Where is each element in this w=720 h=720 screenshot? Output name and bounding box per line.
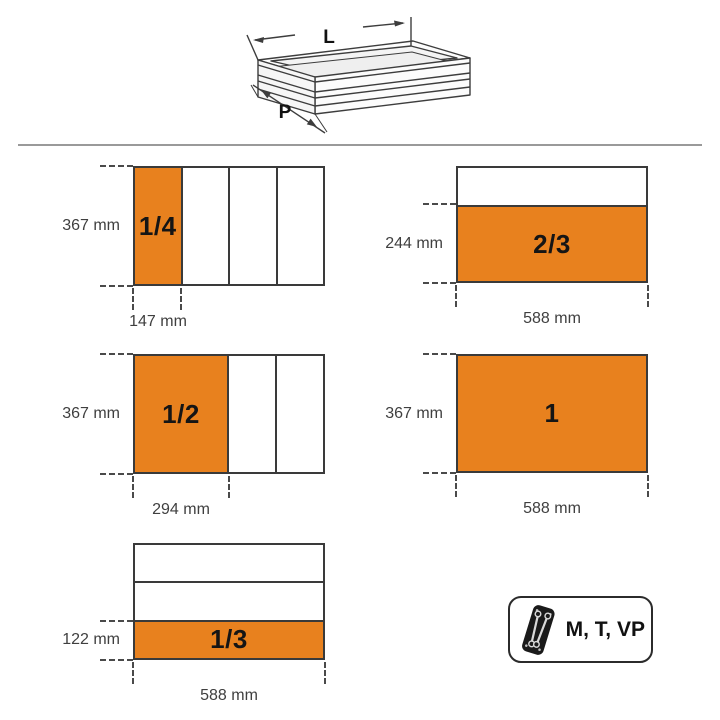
height-dimension-label: 244 mm [385, 235, 443, 253]
extension-line [423, 472, 456, 474]
wrench-tray-icon [518, 602, 559, 658]
height-dimension-label: 367 mm [385, 405, 443, 423]
extension-line [180, 288, 182, 310]
drawer-grid: 1/4 [133, 166, 325, 286]
drawer-size-option-half: 367 mm 1/2 294 mm [133, 354, 325, 474]
drawer-grid: 1/2 [133, 354, 325, 474]
selected-module: 2/3 [458, 205, 646, 281]
extension-line [455, 475, 457, 497]
extension-line [324, 662, 326, 684]
section-divider [18, 144, 702, 146]
extension-line [132, 288, 134, 310]
depth-dimension-label: P [279, 102, 292, 123]
tool-module-badge: M, T, VP [508, 596, 653, 663]
extension-line [423, 203, 456, 205]
height-dimension-label: 367 mm [62, 405, 120, 423]
extension-line [647, 285, 649, 307]
module-slot [275, 356, 323, 472]
selected-module: 1/2 [135, 356, 227, 472]
width-dimension-label: 588 mm [200, 687, 258, 705]
module-slot [228, 168, 276, 284]
drawer-size-option-two-thirds: 244 mm 2/3 588 mm [456, 166, 648, 283]
extension-line [132, 662, 134, 684]
fraction-label: 1/3 [135, 622, 323, 658]
extension-line [423, 282, 456, 284]
width-dimension-label: 588 mm [523, 500, 581, 518]
selected-module: 1/3 [135, 620, 323, 658]
extension-line [647, 475, 649, 497]
width-dimension-label: 294 mm [152, 501, 210, 519]
badge-label: M, T, VP [566, 618, 645, 642]
fraction-label: 1/2 [135, 356, 227, 472]
extension-line [423, 353, 456, 355]
fraction-label: 1 [458, 356, 646, 471]
module-slot [135, 545, 323, 581]
selected-module: 1 [458, 356, 646, 471]
extension-line [100, 285, 133, 287]
extension-line [228, 476, 230, 498]
drawer-grid: 1/3 [133, 543, 325, 660]
module-slot [458, 168, 646, 205]
fraction-label: 2/3 [458, 207, 646, 281]
drawer-grid: 2/3 [456, 166, 648, 283]
module-slot [276, 168, 324, 284]
height-dimension-label: 122 mm [62, 631, 120, 649]
drawer-size-option-full: 367 mm 1 588 mm [456, 354, 648, 473]
extension-line [100, 353, 133, 355]
selected-module: 1/4 [135, 168, 181, 284]
extension-line [100, 165, 133, 167]
extension-line [132, 476, 134, 498]
width-dimension-label: 147 mm [129, 313, 187, 331]
extension-line [100, 620, 133, 622]
module-slot [181, 168, 229, 284]
drawer-size-option-third: 122 mm 1/3 588 mm [133, 543, 325, 660]
height-dimension-label: 367 mm [62, 217, 120, 235]
extension-line [100, 659, 133, 661]
module-slot [227, 356, 275, 472]
drawer-isometric-illustration: L P [245, 12, 485, 140]
fraction-label: 1/4 [135, 168, 181, 284]
drawer-size-diagram-page: L P 367 mm 1/4 147 mm 244 mm 2/3 [0, 0, 720, 720]
length-dimension-label: L [323, 27, 335, 48]
extension-line [100, 473, 133, 475]
module-slot [135, 581, 323, 619]
extension-line [455, 285, 457, 307]
drawer-grid: 1 [456, 354, 648, 473]
width-dimension-label: 588 mm [523, 310, 581, 328]
drawer-size-option-quarter: 367 mm 1/4 147 mm [133, 166, 325, 286]
